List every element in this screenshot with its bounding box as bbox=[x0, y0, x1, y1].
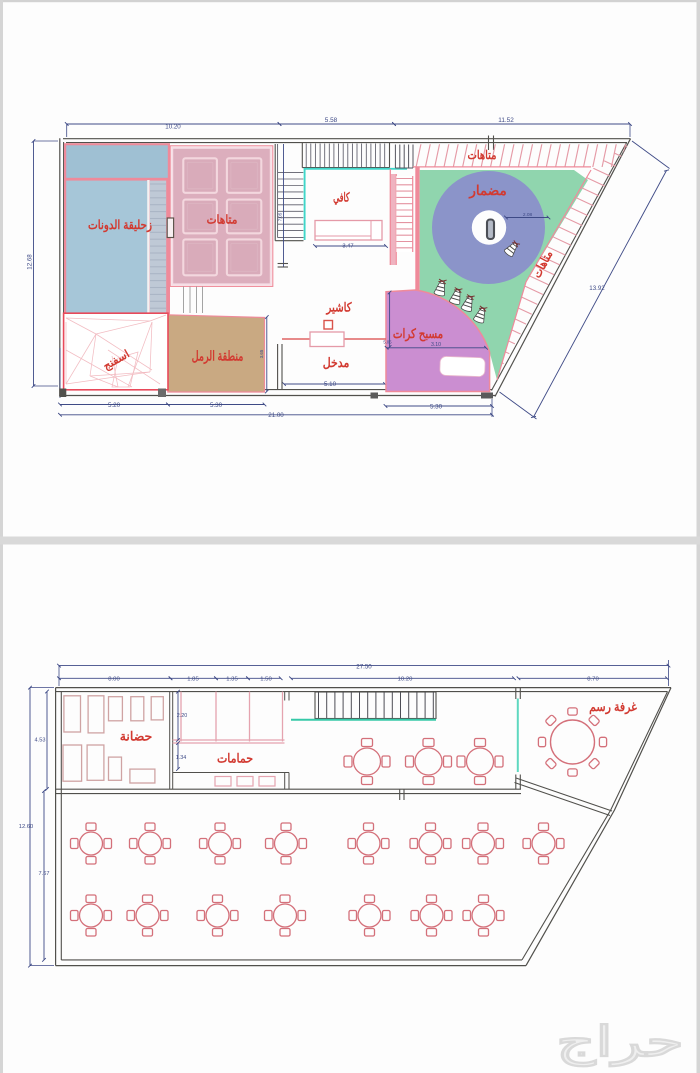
svg-text:زحليقة الدونات: زحليقة الدونات bbox=[88, 219, 152, 232]
svg-text:5.30: 5.30 bbox=[430, 404, 443, 411]
svg-text:غرفة رسم: غرفة رسم bbox=[589, 700, 638, 715]
svg-text:21.00: 21.00 bbox=[268, 412, 284, 419]
svg-text:حضانة: حضانة bbox=[120, 730, 153, 744]
svg-text:مضمار: مضمار bbox=[468, 183, 506, 199]
svg-text:13.92: 13.92 bbox=[589, 285, 605, 292]
svg-text:2.20: 2.20 bbox=[177, 713, 188, 719]
svg-text:كاشير: كاشير bbox=[325, 302, 352, 315]
svg-text:متاهات: متاهات bbox=[467, 149, 496, 162]
svg-text:3.65: 3.65 bbox=[259, 349, 264, 358]
svg-text:منطقة الرمل: منطقة الرمل bbox=[192, 349, 244, 365]
svg-text:5.20: 5.20 bbox=[108, 402, 121, 409]
svg-text:حراج: حراج bbox=[556, 1019, 683, 1067]
svg-text:5.10: 5.10 bbox=[324, 381, 337, 388]
svg-text:5.58: 5.58 bbox=[325, 117, 338, 124]
svg-text:مسبح كرات: مسبح كرات bbox=[393, 327, 443, 343]
svg-text:5.30: 5.30 bbox=[210, 402, 223, 409]
svg-text:2.08: 2.08 bbox=[523, 212, 533, 218]
svg-text:12.60: 12.60 bbox=[19, 824, 34, 830]
svg-text:متاهات: متاهات bbox=[207, 214, 238, 227]
svg-text:1.35: 1.35 bbox=[226, 676, 238, 682]
svg-text:كافي: كافي bbox=[333, 192, 349, 205]
svg-text:1.50: 1.50 bbox=[260, 676, 272, 682]
svg-text:حمامات: حمامات bbox=[217, 752, 253, 766]
svg-text:7.67: 7.67 bbox=[39, 871, 50, 877]
svg-text:7.05: 7.05 bbox=[278, 212, 283, 221]
svg-text:8.70: 8.70 bbox=[587, 676, 599, 682]
svg-text:10.20: 10.20 bbox=[398, 676, 413, 682]
svg-text:10.20: 10.20 bbox=[165, 124, 181, 131]
svg-text:1.34: 1.34 bbox=[176, 755, 187, 761]
svg-text:مدخل: مدخل bbox=[323, 355, 350, 370]
svg-text:12.68: 12.68 bbox=[27, 254, 34, 270]
svg-text:8.00: 8.00 bbox=[108, 676, 120, 682]
svg-text:3.10: 3.10 bbox=[431, 342, 441, 348]
svg-text:1.85: 1.85 bbox=[187, 676, 199, 682]
svg-text:3.47: 3.47 bbox=[342, 243, 353, 249]
svg-text:11.52: 11.52 bbox=[498, 117, 514, 124]
svg-text:27.50: 27.50 bbox=[356, 664, 372, 671]
svg-text:4.53: 4.53 bbox=[35, 738, 46, 744]
svg-text:5.05: 5.05 bbox=[383, 340, 392, 345]
